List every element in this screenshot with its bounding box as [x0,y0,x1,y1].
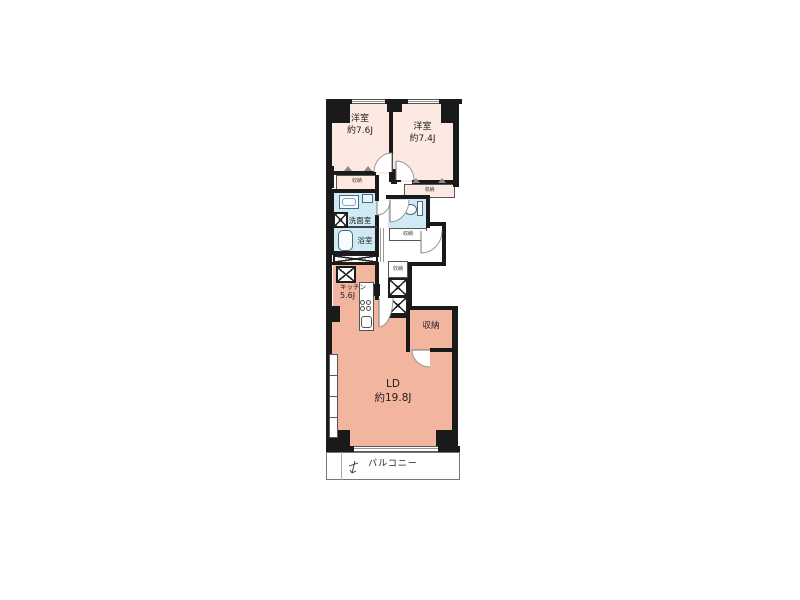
washer-drum-icon [342,198,356,206]
entry-step-line [380,228,381,262]
washer-pan-icon [339,195,359,209]
closet-right-label: 収納 [404,185,455,195]
pillar [436,430,456,450]
folding-door-mark [438,178,446,183]
storage-label: 収納 [410,321,452,332]
door-hall-to-living [379,298,393,327]
closet-hall-upper-label: 収納 [389,229,427,239]
pillar [387,99,402,112]
wall [408,262,446,266]
door-storage [412,350,430,367]
living-dining-label: LD 約19.8J [331,378,455,405]
kitchen-size: 5.6J [340,291,364,301]
wall [330,189,379,193]
bedroom-left-size: 約7.6J [331,126,389,138]
wall [406,306,456,310]
ld-name: LD [331,378,455,392]
door-bedroom-left [374,153,392,172]
kitchen-label: キッチン 5.6J [340,283,364,302]
wall [329,171,376,175]
window [352,99,385,104]
toilet-tank-icon [417,201,423,216]
bedroom-right-name: 洋室 [392,122,453,134]
wall [442,222,446,266]
wall [375,189,379,201]
bedroom-right-size: 約7.4J [392,134,453,146]
wall [386,195,430,199]
pipe-shaft [333,254,378,264]
folding-door-mark [344,166,352,171]
folding-door-mark [364,166,372,171]
bathroom-label: 浴室 [350,236,380,246]
balcony-label: バルコニー [326,459,460,471]
entry-step-line [383,228,384,262]
bedroom-right-label: 洋室 約7.4J [392,122,453,145]
ld-size: 約19.8J [331,392,455,406]
pillar [326,306,340,322]
window [408,99,439,104]
closet-left-label: 収納 [336,176,378,186]
door-toilet [390,200,409,222]
kitchen-name: キッチン [340,283,364,291]
pipe-shaft [388,278,408,297]
floor-plan: 洋室 約7.6J 洋室 約7.4J 洗面室 浴室 キッチン 5.6J 収納 LD… [0,0,800,600]
sink-icon [361,316,372,328]
door-washroom [377,201,390,215]
bedroom-left-label: 洋室 約7.6J [331,114,389,137]
wall [430,348,456,352]
pipe-shaft [336,266,356,283]
closet-hall-lower-label: 収納 [388,264,408,274]
washroom-label: 洗面室 [343,216,377,226]
vanity-icon [362,194,373,203]
bedroom-left-name: 洋室 [331,114,389,126]
pillar [326,166,334,188]
wall [408,262,412,310]
pillar [441,99,458,123]
folding-door-mark [412,178,420,183]
